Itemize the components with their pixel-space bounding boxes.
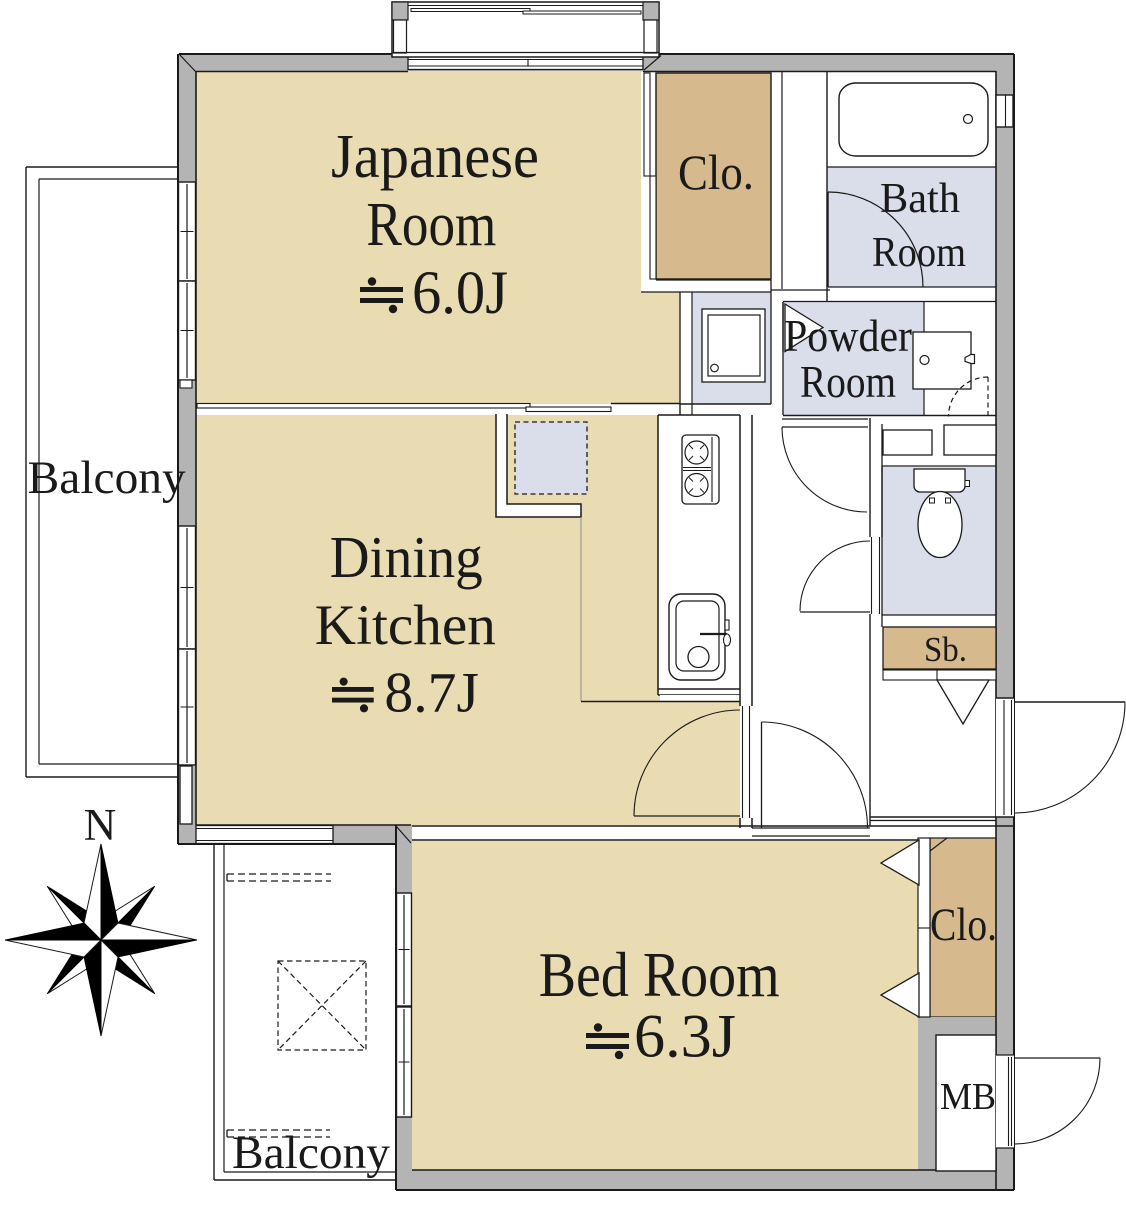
svg-text:MB: MB <box>940 1076 996 1118</box>
svg-text:Sb.: Sb. <box>924 630 967 669</box>
svg-text:Bath: Bath <box>880 176 960 222</box>
svg-text:N: N <box>84 800 117 850</box>
svg-text:Powder: Powder <box>784 310 912 361</box>
svg-text:Clo.: Clo. <box>930 899 997 951</box>
svg-text:Clo.: Clo. <box>678 144 754 200</box>
svg-text:6.3J: 6.3J <box>634 1004 736 1071</box>
svg-text:8.7J: 8.7J <box>384 662 479 725</box>
svg-text:Balcony: Balcony <box>28 452 186 504</box>
svg-text:Room: Room <box>366 191 496 259</box>
svg-text:Room: Room <box>800 356 896 407</box>
svg-text:Japanese: Japanese <box>331 123 539 191</box>
svg-text:Balcony: Balcony <box>232 1127 390 1179</box>
svg-text:Kitchen: Kitchen <box>315 594 496 657</box>
svg-text:Dining: Dining <box>330 524 483 590</box>
svg-text:Room: Room <box>872 230 966 276</box>
svg-text:6.0J: 6.0J <box>412 260 508 327</box>
svg-text:Bed Room: Bed Room <box>539 940 780 1010</box>
